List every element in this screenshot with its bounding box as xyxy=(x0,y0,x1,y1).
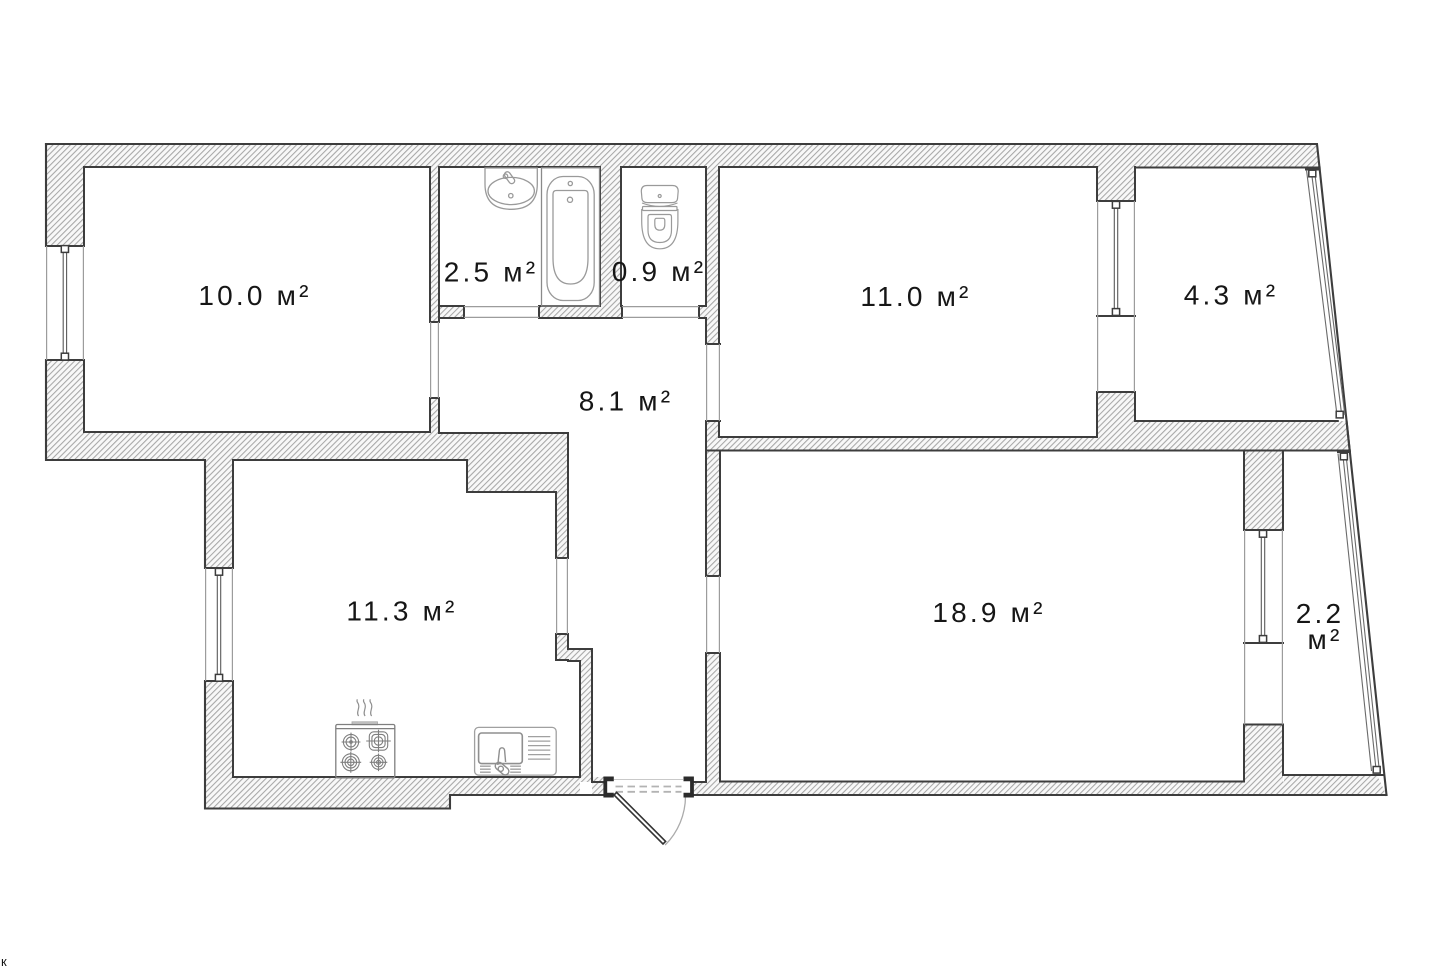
svg-text:11.0 м²: 11.0 м² xyxy=(860,281,971,312)
svg-text:4.3 м²: 4.3 м² xyxy=(1184,280,1278,311)
svg-text:8.1 м²: 8.1 м² xyxy=(579,386,673,417)
svg-text:10.0 м²: 10.0 м² xyxy=(198,280,311,311)
svg-text:2.5 м²: 2.5 м² xyxy=(444,257,538,288)
svg-text:0.9 м²: 0.9 м² xyxy=(612,256,706,287)
svg-text:к: к xyxy=(1,954,7,969)
svg-text:11.3 м²: 11.3 м² xyxy=(346,596,457,627)
svg-text:18.9 м²: 18.9 м² xyxy=(932,597,1045,628)
svg-text:м²: м² xyxy=(1308,624,1343,655)
